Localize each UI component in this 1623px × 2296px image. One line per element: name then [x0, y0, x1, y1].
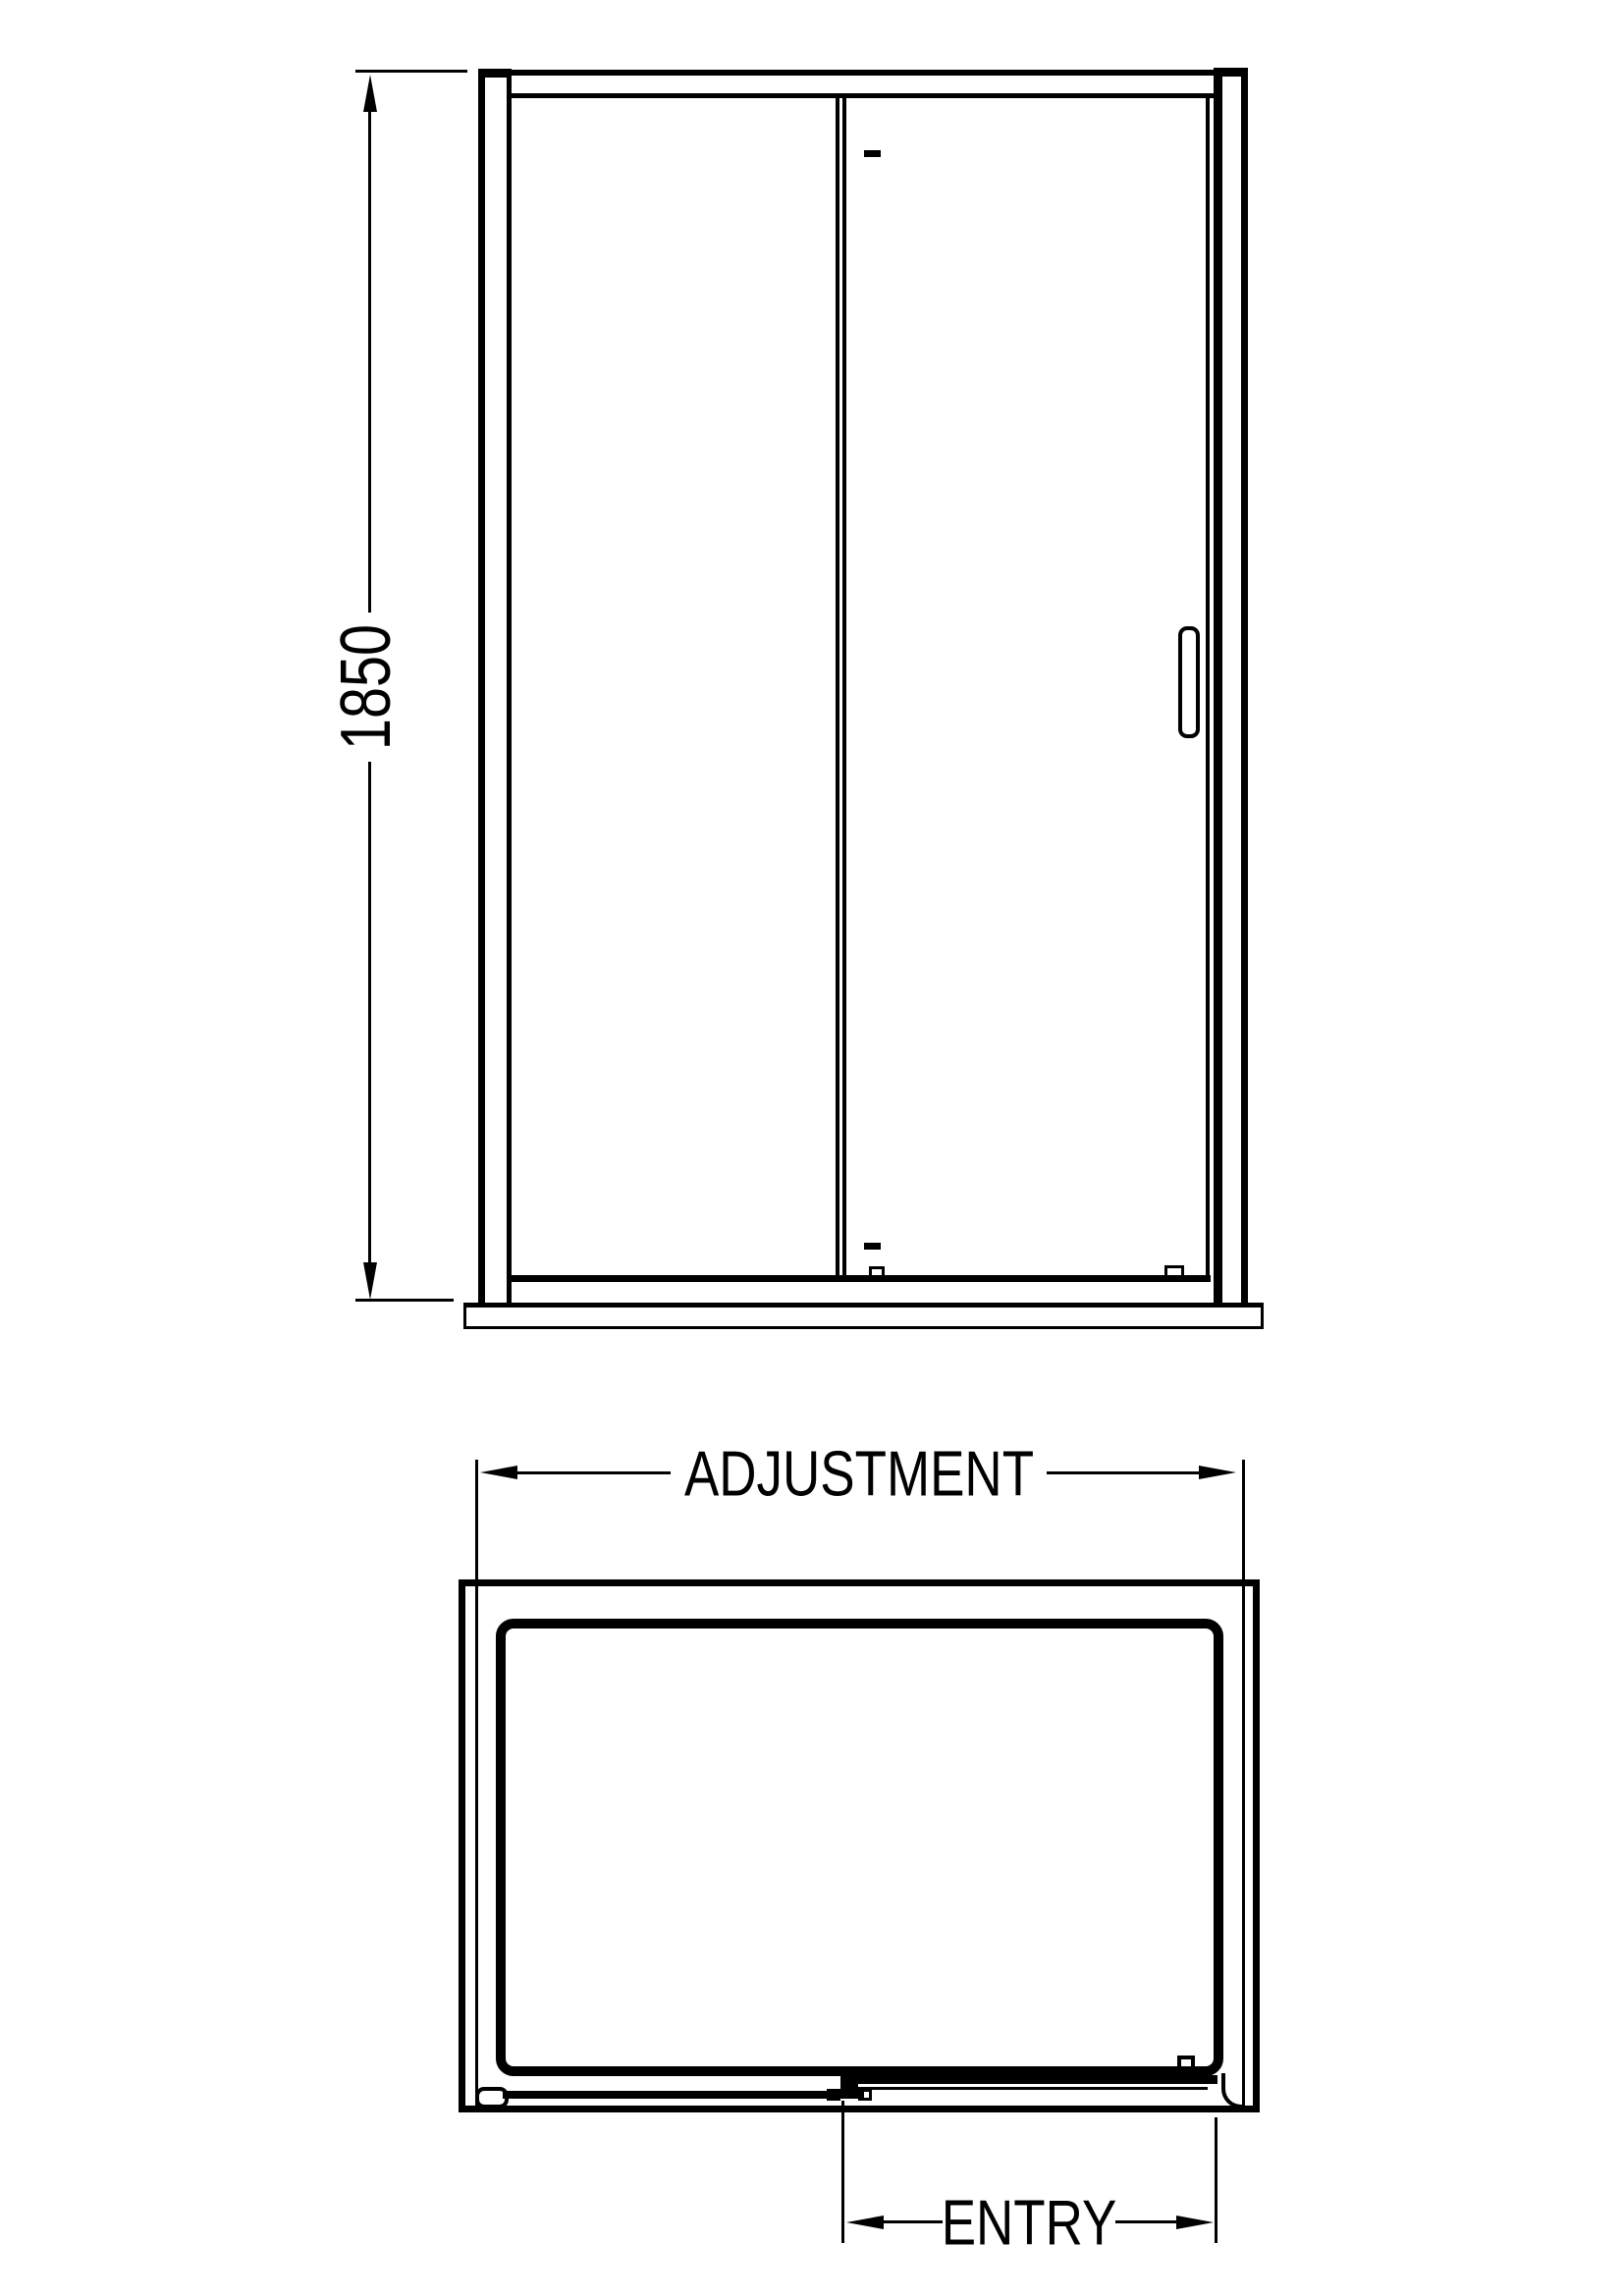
right-wall-profile-cap: [1214, 68, 1248, 77]
height-dim-label: 1850: [326, 624, 406, 750]
fixed-panel-glass-line: [503, 2091, 864, 2099]
centre-guide-foot-right-icon: [858, 2089, 872, 2101]
door-handle-icon: [1178, 626, 1200, 738]
shower-tray-plan: [496, 1619, 1223, 2076]
sliding-panel-seal-line: [842, 2087, 1208, 2090]
bottom-rail: [508, 1275, 1211, 1282]
adjustment-dim-label: ADJUSTMENT: [684, 1437, 1034, 1511]
top-rail-lower-line: [508, 93, 1217, 98]
panel-overlap-line-b: [842, 98, 846, 1276]
left-wall-profile-inner: [507, 69, 512, 1304]
centre-guide-block-icon: [840, 2075, 858, 2099]
entry-dim-label: ENTRY: [942, 2186, 1117, 2260]
entry-arrow-left-icon: [846, 2216, 884, 2229]
entry-extension-left: [841, 2101, 844, 2243]
height-dim-arrow-up-icon: [363, 75, 377, 112]
door-handle-plan-icon: [1177, 2056, 1195, 2077]
height-dim-arrow-down-icon: [363, 1262, 377, 1300]
centre-guide-foot-left-icon: [827, 2089, 840, 2101]
technical-drawing-canvas: 1850 AD: [0, 0, 1623, 2296]
adjustment-arrow-right-icon: [1199, 1466, 1236, 1479]
height-dim-line-lower: [368, 762, 371, 1266]
adjustment-extension-left: [475, 1460, 478, 1587]
height-dim-extension-bottom: [355, 1299, 454, 1302]
adjustment-extension-right: [1242, 1460, 1245, 1587]
entry-dim-line-right: [1115, 2220, 1181, 2223]
height-dim-extension-top: [355, 70, 467, 73]
shower-tray-front: [463, 1303, 1264, 1329]
bottom-roller-dash-icon: [864, 1243, 881, 1250]
right-wall-profile-outer: [1241, 69, 1248, 1304]
adjustment-arrow-left-icon: [480, 1466, 517, 1479]
plan-inner-face-left: [475, 1586, 478, 2106]
entry-arrow-right-icon: [1176, 2216, 1214, 2229]
plan-inner-face-right: [1242, 1586, 1245, 2106]
entry-dim-line-left: [882, 2220, 943, 2223]
top-rail-upper-line: [485, 70, 1217, 76]
top-roller-bracket-icon: [864, 150, 881, 157]
entry-extension-right: [1215, 2117, 1217, 2243]
adjustment-dim-line-left: [517, 1471, 671, 1474]
left-wall-profile-outer: [478, 69, 485, 1304]
right-wall-profile-inner: [1214, 69, 1222, 1304]
height-dim-line-upper: [368, 108, 371, 613]
handle-notch-icon: [1166, 2074, 1176, 2083]
adjustment-dim-line-right: [1047, 1471, 1201, 1474]
sliding-panel-glass-line: [842, 2075, 1217, 2084]
panel-overlap-line-a: [836, 98, 839, 1276]
door-glass-right-edge: [1206, 98, 1210, 1276]
